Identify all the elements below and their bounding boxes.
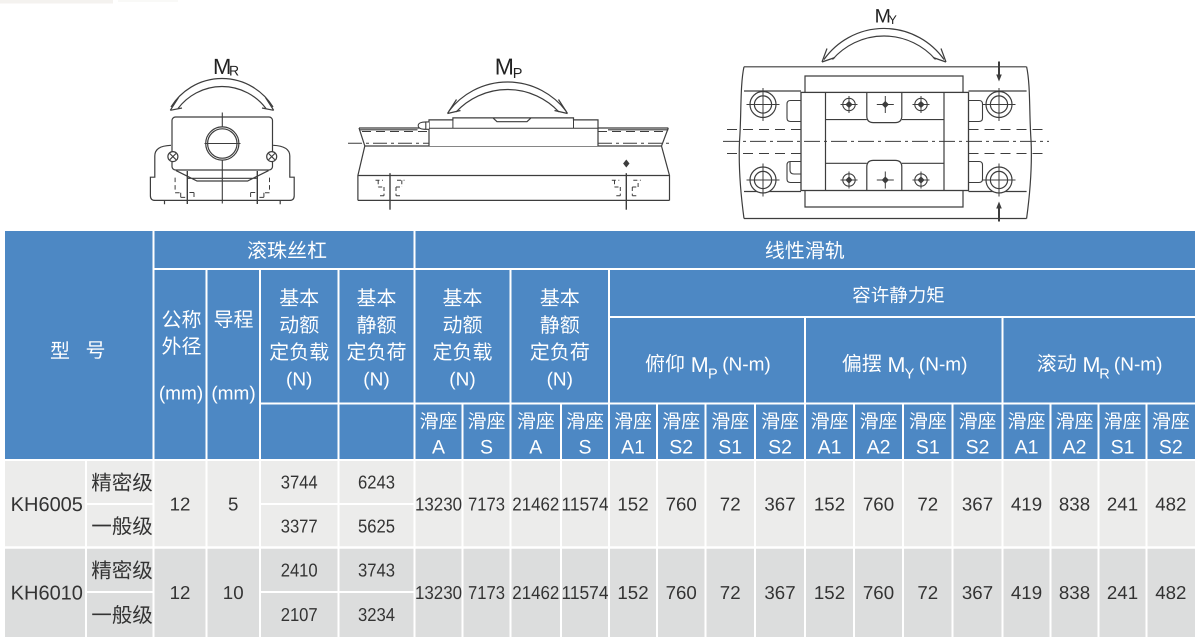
svg-text:S1: S1	[1111, 437, 1135, 459]
svg-text:P: P	[513, 66, 523, 82]
svg-text:760: 760	[863, 494, 894, 515]
svg-text:R: R	[229, 63, 239, 79]
svg-text:KH6010: KH6010	[11, 583, 83, 605]
svg-text:419: 419	[1011, 494, 1042, 515]
svg-text:367: 367	[962, 494, 993, 515]
svg-text:2410: 2410	[281, 560, 318, 581]
svg-text:S: S	[578, 437, 591, 459]
svg-text:S2: S2	[669, 437, 693, 459]
svg-text:3377: 3377	[281, 516, 318, 537]
svg-text:11574: 11574	[562, 582, 609, 603]
svg-text:72: 72	[917, 582, 938, 603]
svg-text:M: M	[495, 53, 514, 79]
svg-text:838: 838	[1059, 582, 1090, 603]
svg-text:A2: A2	[1063, 437, 1087, 459]
svg-text:S2: S2	[1159, 437, 1183, 459]
svg-text:3743: 3743	[358, 560, 395, 581]
svg-text:Y: Y	[905, 366, 915, 382]
svg-text:A: A	[529, 437, 542, 459]
svg-text:419: 419	[1011, 582, 1042, 603]
svg-text:5: 5	[228, 494, 238, 515]
svg-text:21462: 21462	[512, 494, 559, 515]
svg-text:838: 838	[1059, 494, 1090, 515]
svg-text:152: 152	[617, 494, 648, 515]
svg-text:S2: S2	[966, 437, 990, 459]
svg-text:3234: 3234	[358, 604, 395, 625]
svg-text:7173: 7173	[468, 494, 505, 515]
svg-text:3744: 3744	[281, 472, 318, 493]
svg-text:Y: Y	[889, 13, 898, 27]
svg-text:12: 12	[170, 582, 191, 603]
svg-text:(mm): (mm)	[159, 383, 203, 404]
svg-text:13230: 13230	[415, 582, 462, 603]
svg-text:(N): (N)	[363, 369, 389, 390]
svg-text:5625: 5625	[358, 516, 395, 537]
svg-text:A2: A2	[867, 437, 891, 459]
svg-text:7173: 7173	[468, 582, 505, 603]
svg-text:S2: S2	[768, 437, 792, 459]
svg-text:P: P	[708, 366, 718, 382]
svg-text:760: 760	[863, 582, 894, 603]
svg-text:A1: A1	[621, 437, 645, 459]
svg-text:(N-m): (N-m)	[722, 354, 771, 375]
svg-text:S1: S1	[916, 437, 940, 459]
svg-text:13230: 13230	[415, 494, 462, 515]
svg-text:11574: 11574	[562, 494, 609, 515]
svg-text:152: 152	[814, 582, 845, 603]
svg-text:367: 367	[962, 582, 993, 603]
svg-text:S1: S1	[718, 437, 742, 459]
svg-text:760: 760	[666, 582, 697, 603]
svg-text:72: 72	[917, 494, 938, 515]
svg-text:(N): (N)	[449, 369, 475, 390]
svg-text:M: M	[691, 353, 709, 377]
svg-text:M: M	[888, 353, 906, 377]
svg-text:72: 72	[720, 582, 741, 603]
svg-text:760: 760	[666, 494, 697, 515]
svg-text:482: 482	[1155, 494, 1186, 515]
svg-text:2107: 2107	[281, 604, 318, 625]
svg-text:10: 10	[223, 582, 244, 603]
svg-text:12: 12	[170, 494, 191, 515]
svg-text:367: 367	[764, 494, 795, 515]
svg-text:(N): (N)	[286, 369, 312, 390]
svg-text:A1: A1	[818, 437, 842, 459]
svg-text:(N): (N)	[547, 369, 573, 390]
svg-text:A: A	[432, 437, 445, 459]
svg-text:72: 72	[720, 494, 741, 515]
svg-text:241: 241	[1107, 494, 1138, 515]
svg-text:241: 241	[1107, 582, 1138, 603]
svg-text:482: 482	[1155, 582, 1186, 603]
svg-text:6243: 6243	[358, 472, 395, 493]
svg-text:152: 152	[814, 494, 845, 515]
svg-text:KH6005: KH6005	[11, 494, 83, 516]
svg-text:(N-m): (N-m)	[1114, 354, 1163, 375]
svg-text:(N-m): (N-m)	[919, 354, 968, 375]
svg-text:(mm): (mm)	[211, 383, 255, 404]
svg-text:152: 152	[617, 582, 648, 603]
svg-text:M: M	[1083, 353, 1101, 377]
svg-text:367: 367	[764, 582, 795, 603]
svg-text:S: S	[480, 437, 493, 459]
svg-text:R: R	[1099, 366, 1109, 382]
svg-text:21462: 21462	[512, 582, 559, 603]
svg-text:A1: A1	[1015, 437, 1039, 459]
